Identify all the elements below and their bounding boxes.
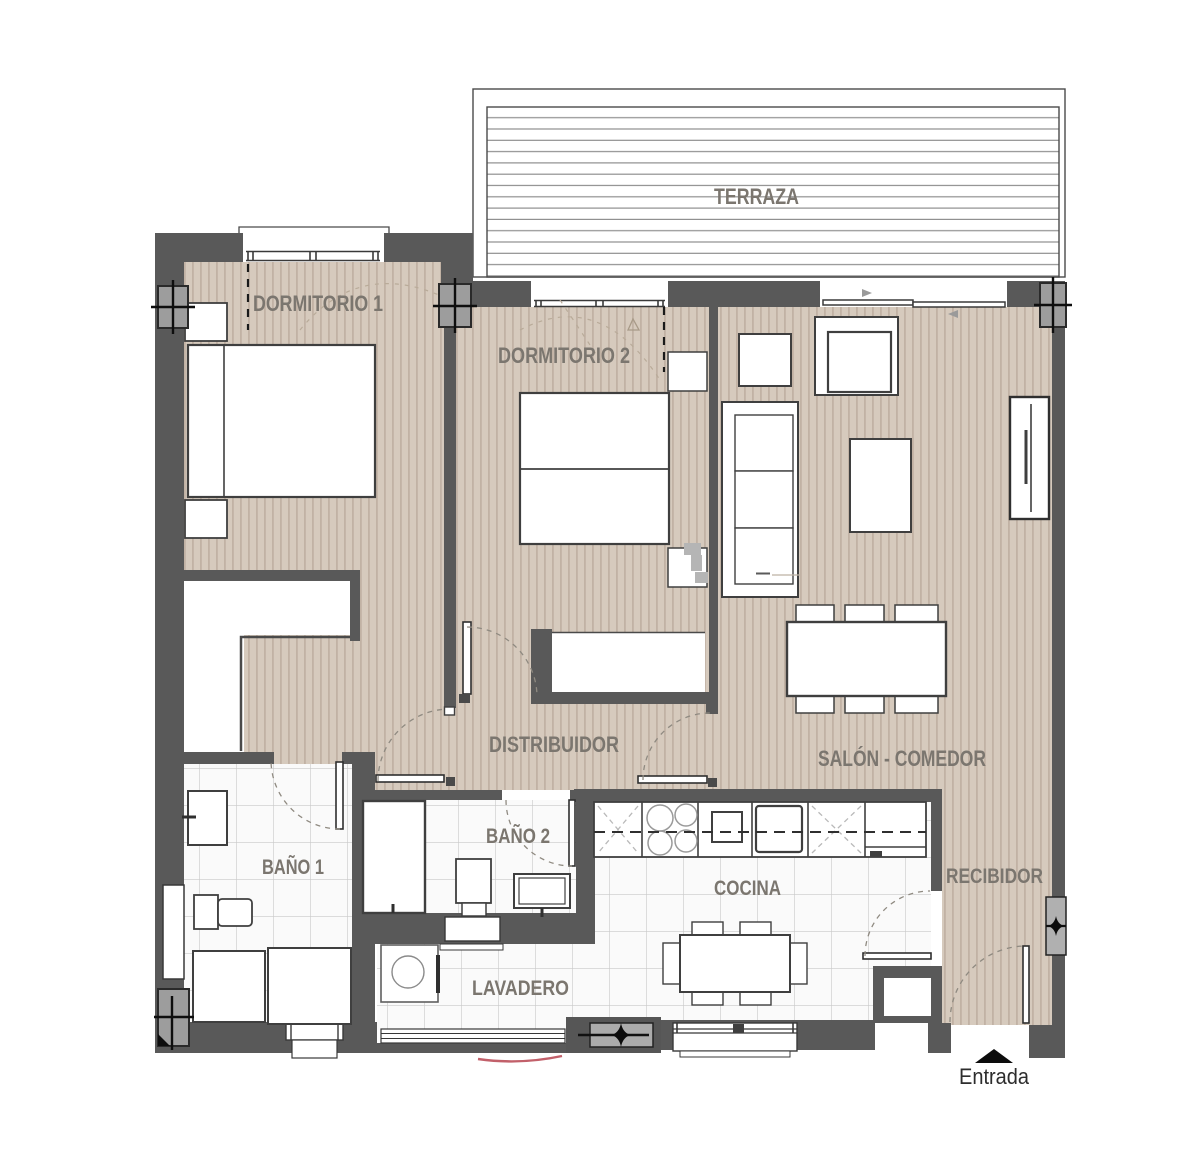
svg-text:LAVADERO: LAVADERO [472,977,569,1000]
svg-text:DORMITORIO 2: DORMITORIO 2 [498,343,630,368]
svg-text:DORMITORIO 1: DORMITORIO 1 [253,291,383,316]
svg-text:BAÑO 1: BAÑO 1 [262,856,324,879]
svg-text:SALÓN - COMEDOR: SALÓN - COMEDOR [818,746,986,771]
svg-text:TERRAZA: TERRAZA [714,184,799,209]
svg-text:DISTRIBUIDOR: DISTRIBUIDOR [489,732,619,757]
svg-text:Entrada: Entrada [959,1064,1030,1089]
svg-text:BAÑO 2: BAÑO 2 [486,825,550,848]
svg-text:RECIBIDOR: RECIBIDOR [946,865,1043,888]
svg-text:COCINA: COCINA [714,877,781,900]
